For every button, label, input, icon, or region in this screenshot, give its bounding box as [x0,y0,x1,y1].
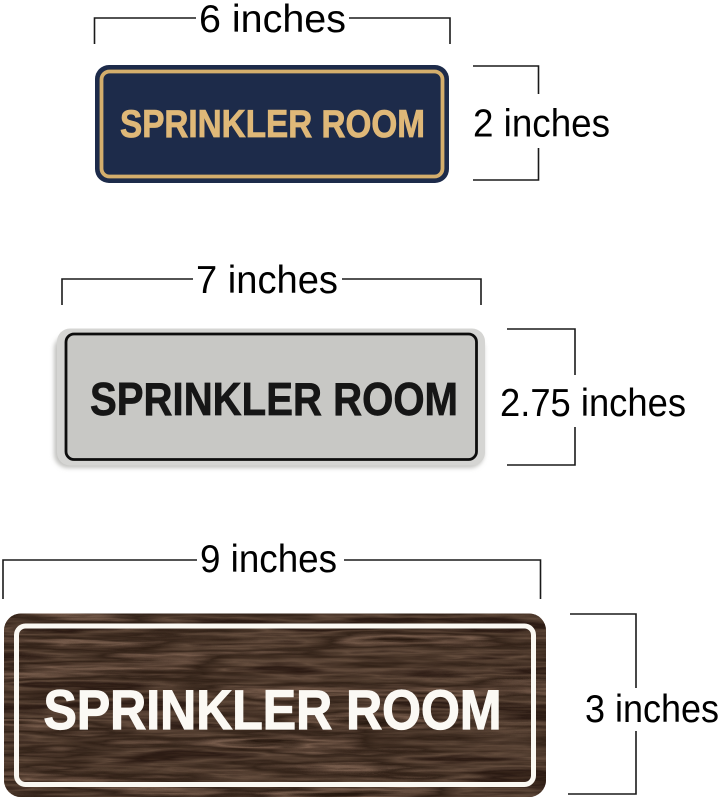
svg-text:2.75 inches: 2.75 inches [500,382,686,425]
svg-text:SPRINKLER ROOM: SPRINKLER ROOM [44,678,502,741]
svg-text:6 inches: 6 inches [199,0,346,41]
svg-text:SPRINKLER ROOM: SPRINKLER ROOM [120,103,425,146]
svg-text:7 inches: 7 inches [196,259,338,302]
svg-text:3 inches: 3 inches [585,688,719,731]
svg-text:SPRINKLER ROOM: SPRINKLER ROOM [90,373,458,425]
svg-text:9 inches: 9 inches [200,538,337,581]
svg-text:2 inches: 2 inches [473,103,610,146]
